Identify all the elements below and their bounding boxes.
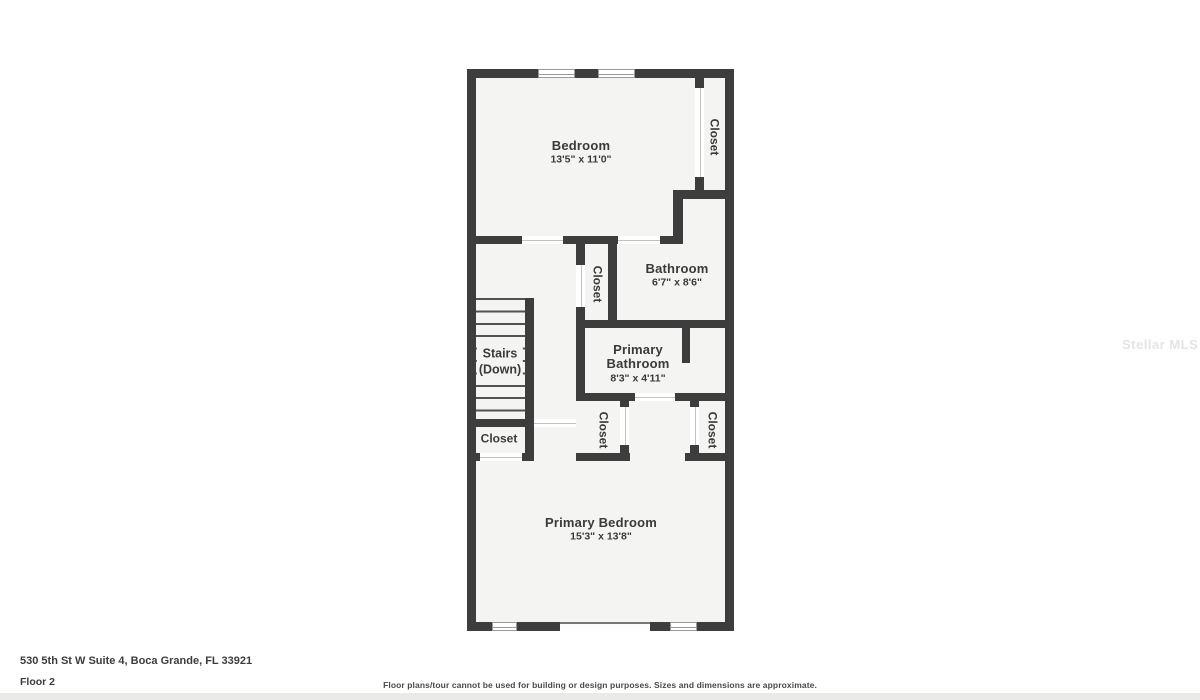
closet-us-door-opening — [480, 453, 522, 461]
wall-hall-seg-2 — [563, 236, 618, 244]
wall-hall-closet-left-stub-b — [576, 307, 585, 320]
primary-bathroom-door-opening — [635, 393, 675, 401]
wall-primary-bathroom-west — [576, 328, 585, 401]
wall-hall-bottom — [467, 419, 534, 427]
wall-outer-right — [725, 69, 734, 631]
wall-closet-ll-bottom — [576, 453, 630, 461]
bottom-wide-opening — [560, 622, 650, 631]
hall-closet-label: Closet — [590, 266, 605, 303]
window-top-2 — [598, 69, 635, 78]
hall-closet-door-opening — [576, 265, 585, 307]
bedroom-dims: 13'5" x 11'0" — [550, 153, 611, 166]
bedroom-label: Bedroom — [552, 138, 610, 154]
primary-bedroom-label: Primary Bedroom — [545, 515, 657, 531]
disclaimer-text: Floor plans/tour cannot be used for buil… — [0, 680, 1200, 690]
floor-plan-page: Bedroom 13'5" x 11'0" Closet Bathroom 6'… — [0, 0, 1200, 700]
stairs-label-line2: (Down) — [479, 362, 521, 378]
wall-closet-us-bottom-2 — [522, 453, 534, 461]
stairs-label-line1: Stairs — [479, 346, 521, 362]
closet-lower-left-label: Closet — [596, 412, 611, 449]
window-top-1 — [538, 69, 575, 78]
wall-closet-lr-left-stub-b — [690, 445, 699, 453]
stellar-mls-watermark: Stellar MLS — [1122, 337, 1198, 352]
property-address: 530 5th St W Suite 4, Boca Grande, FL 33… — [20, 655, 252, 667]
wall-hall-closet-left-stub-a — [576, 244, 585, 265]
floor-plan: Bedroom 13'5" x 11'0" Closet Bathroom 6'… — [467, 69, 734, 631]
wall-primary-bathroom-bottom-2 — [675, 393, 734, 401]
wall-closet-top-stub-a — [695, 78, 704, 88]
primary-bathroom-label-2: Bathroom — [607, 356, 670, 372]
bathroom-dims: 6'7" x 8'6" — [652, 276, 702, 289]
bathroom-label: Bathroom — [646, 261, 709, 277]
primary-bedroom-door-opening — [534, 419, 576, 427]
primary-bathroom-dims: 8'3" x 4'11" — [610, 372, 665, 385]
stairs-label: Stairs (Down) — [477, 345, 523, 378]
wall-closet-us-bottom-1 — [467, 453, 480, 461]
wall-stairs-right — [525, 298, 534, 461]
wall-primary-bathroom-top — [576, 320, 734, 328]
closet-lr-door-opening — [690, 407, 699, 445]
closet-top-right-label: Closet — [707, 119, 722, 156]
window-bottom-1 — [492, 622, 517, 631]
wall-primary-bathroom-bottom-1 — [576, 393, 635, 401]
closet-top-door-opening — [695, 88, 704, 177]
closet-lower-right-label: Closet — [705, 412, 720, 449]
wall-hall-seg-3 — [660, 236, 683, 244]
bedroom-door-opening — [522, 236, 563, 244]
wall-hall-closet-right — [608, 244, 617, 328]
wall-closet-top-stub-b — [695, 177, 704, 190]
wall-hall-seg-1 — [467, 236, 522, 244]
bathroom-door-opening — [618, 236, 660, 244]
primary-bedroom-dims: 15'3" x 13'8" — [570, 530, 632, 543]
wall-outer-left — [467, 69, 476, 631]
wall-closet-lr-bottom — [685, 453, 734, 461]
closet-under-stairs-label: Closet — [481, 432, 518, 447]
bottom-edge-strip — [0, 693, 1200, 700]
closet-ll-door-opening — [620, 407, 629, 445]
wall-bedroom-se-corner — [673, 190, 683, 241]
wall-closet-ll-right-stub-b — [620, 445, 629, 453]
window-bottom-2 — [670, 622, 697, 631]
wall-primary-bathroom-stub — [682, 328, 690, 363]
